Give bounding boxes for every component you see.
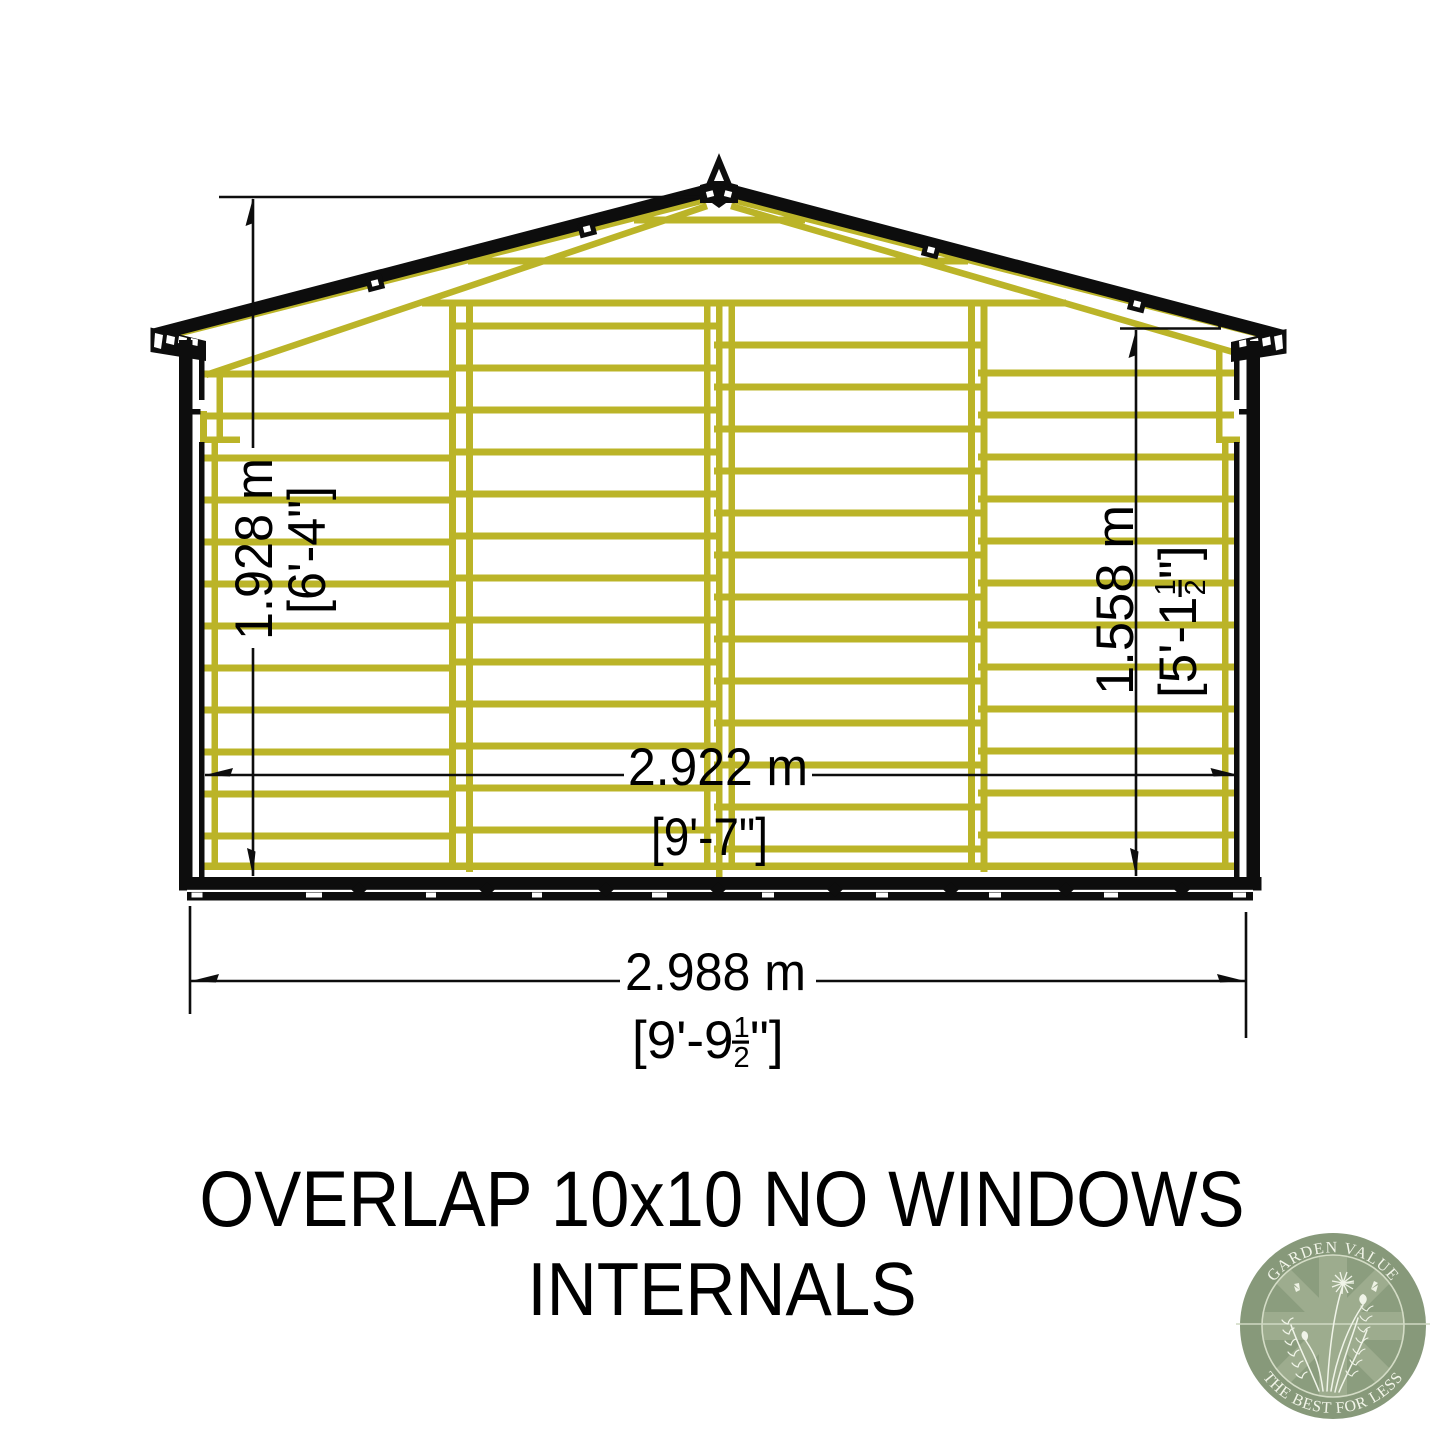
- svg-text:[5'-1: [5'-1: [1149, 597, 1208, 698]
- svg-text:1.928 m: 1.928 m: [225, 458, 284, 640]
- svg-text:2.922 m: 2.922 m: [628, 738, 808, 797]
- svg-text:"]: "]: [1149, 545, 1208, 579]
- svg-text:OVERLAP 10x10 NO WINDOWS: OVERLAP 10x10 NO WINDOWS: [199, 1154, 1244, 1243]
- svg-text:[6'-4"]: [6'-4"]: [278, 486, 337, 614]
- svg-text:[9'-7"]: [9'-7"]: [651, 808, 768, 867]
- svg-text:INTERNALS: INTERNALS: [527, 1249, 916, 1332]
- svg-text:"]: "]: [750, 1011, 784, 1070]
- svg-text:2.988 m: 2.988 m: [625, 943, 806, 1002]
- svg-text:[9'-9: [9'-9: [632, 1011, 733, 1070]
- svg-text:1.558 m: 1.558 m: [1086, 505, 1145, 695]
